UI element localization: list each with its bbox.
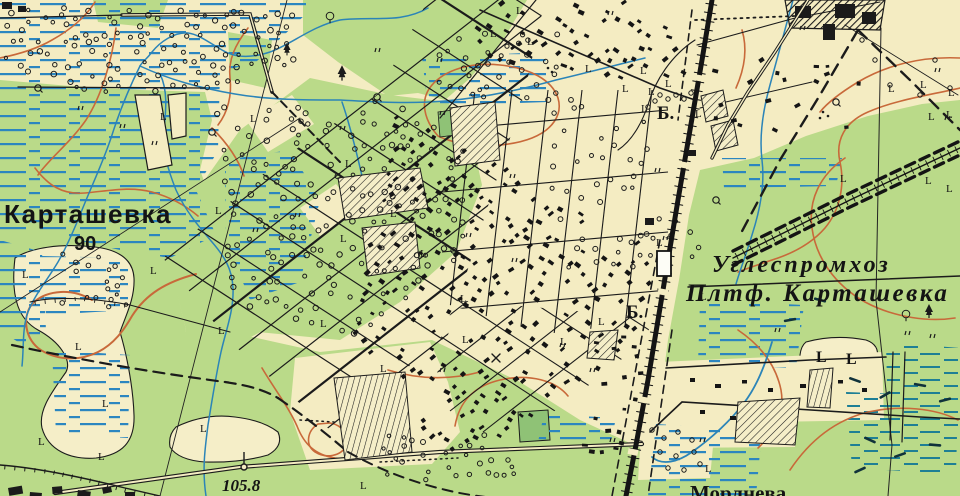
svg-text:Карташевка: Карташевка bbox=[4, 199, 172, 229]
svg-text:L: L bbox=[560, 336, 567, 348]
svg-text:L: L bbox=[420, 248, 427, 260]
svg-text:L: L bbox=[527, 36, 534, 48]
svg-text:L: L bbox=[380, 363, 387, 375]
svg-text:L: L bbox=[622, 83, 629, 95]
svg-text:Углеспромхоз: Углеспромхоз bbox=[712, 252, 891, 278]
svg-text:L: L bbox=[460, 293, 467, 305]
svg-text:L: L bbox=[648, 86, 655, 98]
svg-text:L: L bbox=[840, 173, 847, 185]
svg-text:L: L bbox=[102, 398, 109, 410]
svg-text:L: L bbox=[345, 158, 352, 170]
svg-text:L: L bbox=[160, 111, 167, 123]
svg-text:L: L bbox=[250, 113, 257, 125]
svg-text:Б.: Б. bbox=[657, 103, 674, 124]
svg-text:L: L bbox=[98, 451, 105, 463]
svg-text:L: L bbox=[490, 28, 497, 40]
svg-text:Б.: Б. bbox=[626, 302, 643, 323]
svg-text:L: L bbox=[705, 463, 712, 475]
svg-text:L: L bbox=[665, 78, 672, 90]
svg-text:L: L bbox=[640, 65, 647, 77]
svg-text:L: L bbox=[390, 208, 397, 220]
svg-text:90: 90 bbox=[74, 233, 96, 255]
svg-text:L: L bbox=[215, 205, 222, 217]
svg-text:L: L bbox=[598, 316, 605, 328]
svg-text:L: L bbox=[516, 5, 523, 17]
svg-text:L: L bbox=[200, 423, 207, 435]
svg-text:Плтф. Карташевка: Плтф. Карташевка bbox=[685, 280, 949, 307]
svg-text:L: L bbox=[946, 183, 953, 195]
svg-text:L: L bbox=[925, 175, 932, 187]
svg-text:Морлнева: Морлнева bbox=[690, 481, 787, 496]
svg-text:L: L bbox=[920, 79, 927, 91]
svg-text:L: L bbox=[888, 83, 895, 95]
svg-text:L: L bbox=[695, 108, 702, 120]
svg-text:L: L bbox=[75, 341, 82, 353]
svg-text:L: L bbox=[585, 63, 592, 75]
svg-text:L: L bbox=[340, 233, 347, 245]
svg-text:105.8: 105.8 bbox=[222, 476, 261, 495]
svg-text:L: L bbox=[656, 237, 663, 249]
svg-text:L: L bbox=[218, 325, 225, 337]
svg-text:L: L bbox=[150, 265, 157, 277]
svg-text:L: L bbox=[320, 318, 327, 330]
svg-text:L: L bbox=[38, 436, 45, 448]
svg-text:L: L bbox=[846, 351, 857, 368]
svg-text:L: L bbox=[22, 269, 29, 281]
svg-text:L: L bbox=[462, 334, 469, 346]
svg-text:L: L bbox=[816, 349, 827, 366]
svg-text:L: L bbox=[360, 480, 367, 492]
svg-text:L: L bbox=[928, 111, 935, 123]
